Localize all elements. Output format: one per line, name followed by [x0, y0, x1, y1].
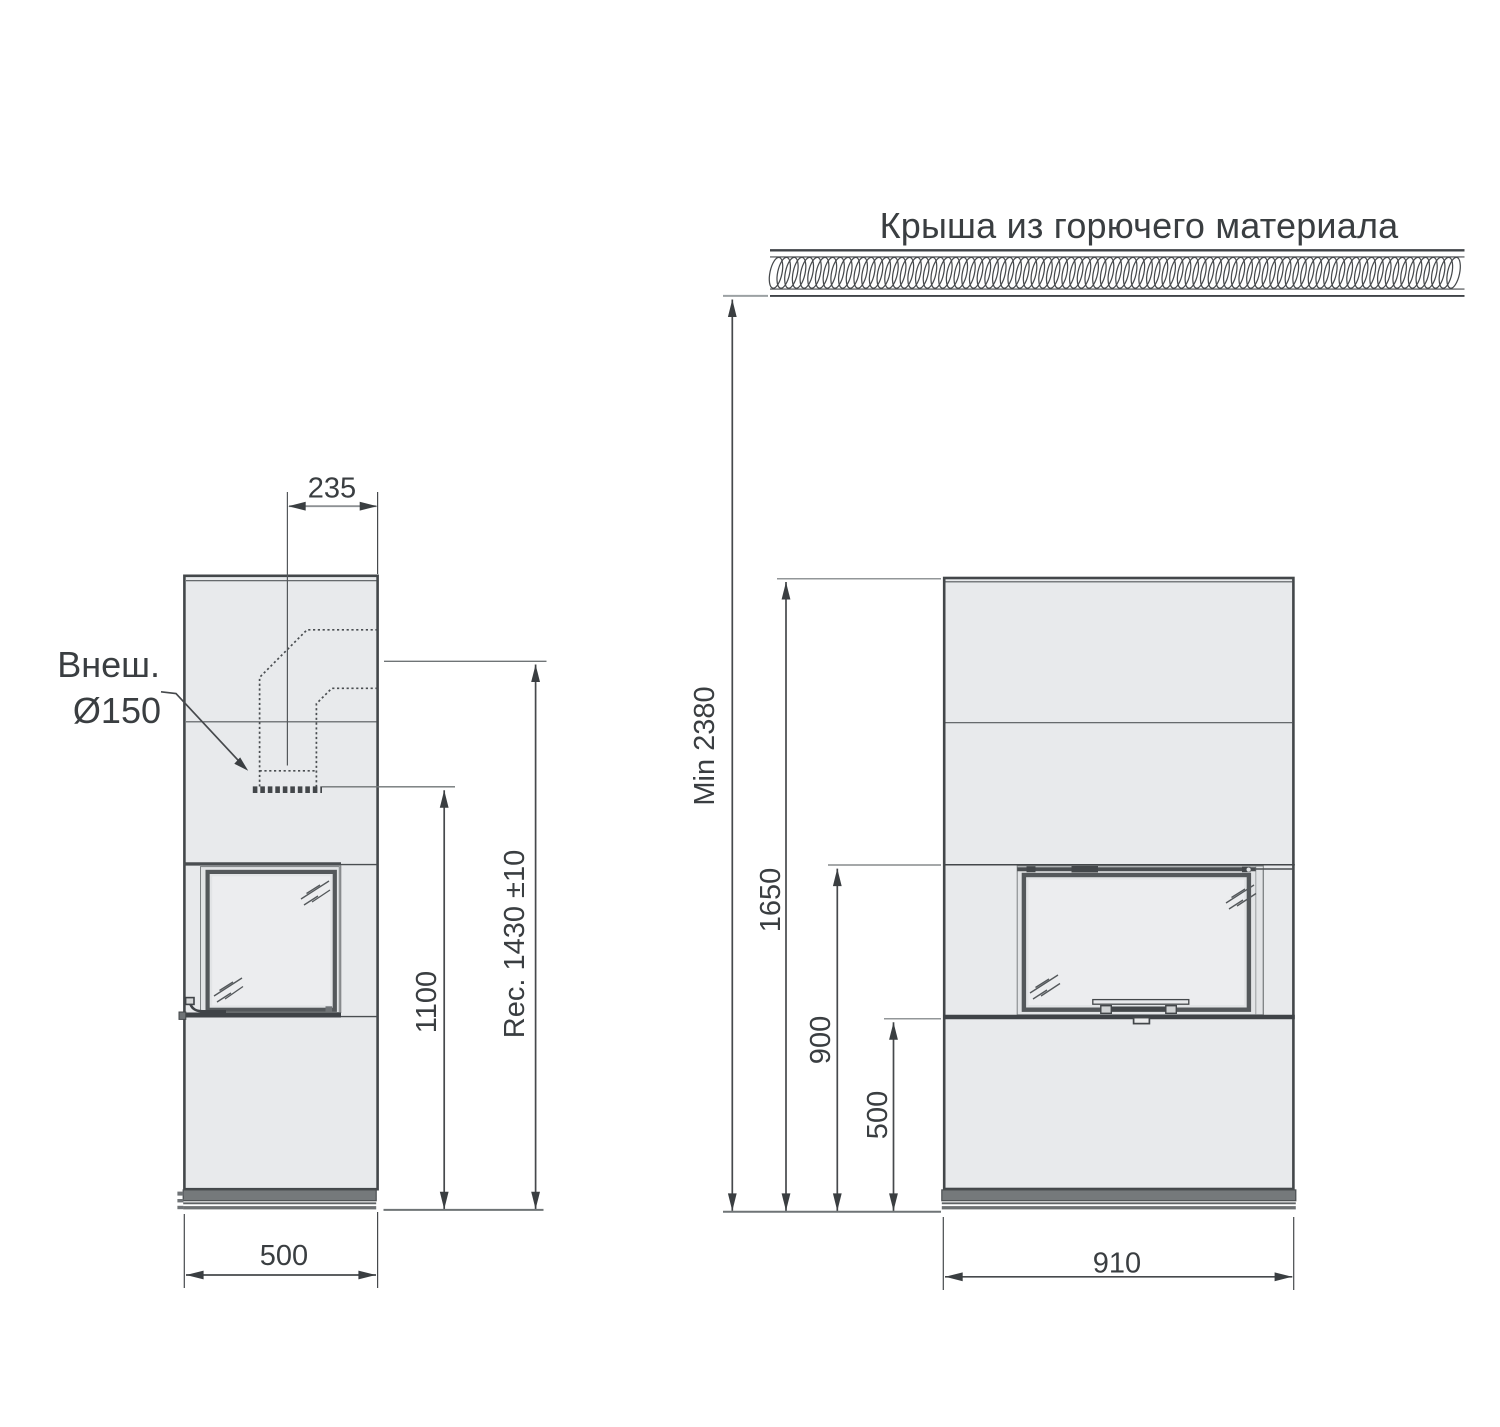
svg-text:Внеш.: Внеш. — [57, 644, 160, 685]
svg-text:900: 900 — [805, 1016, 837, 1064]
svg-text:Min 2380: Min 2380 — [689, 686, 721, 805]
svg-text:500: 500 — [260, 1240, 308, 1272]
svg-text:Ø150: Ø150 — [73, 690, 161, 731]
svg-text:1650: 1650 — [755, 868, 787, 933]
svg-text:Крыша из горючего материала: Крыша из горючего материала — [880, 205, 1400, 246]
svg-text:235: 235 — [308, 473, 356, 505]
svg-text:910: 910 — [1093, 1248, 1141, 1280]
svg-text:1100: 1100 — [411, 971, 443, 1033]
svg-text:Rec. 1430 ±10: Rec. 1430 ±10 — [499, 850, 531, 1038]
svg-text:500: 500 — [862, 1091, 894, 1139]
